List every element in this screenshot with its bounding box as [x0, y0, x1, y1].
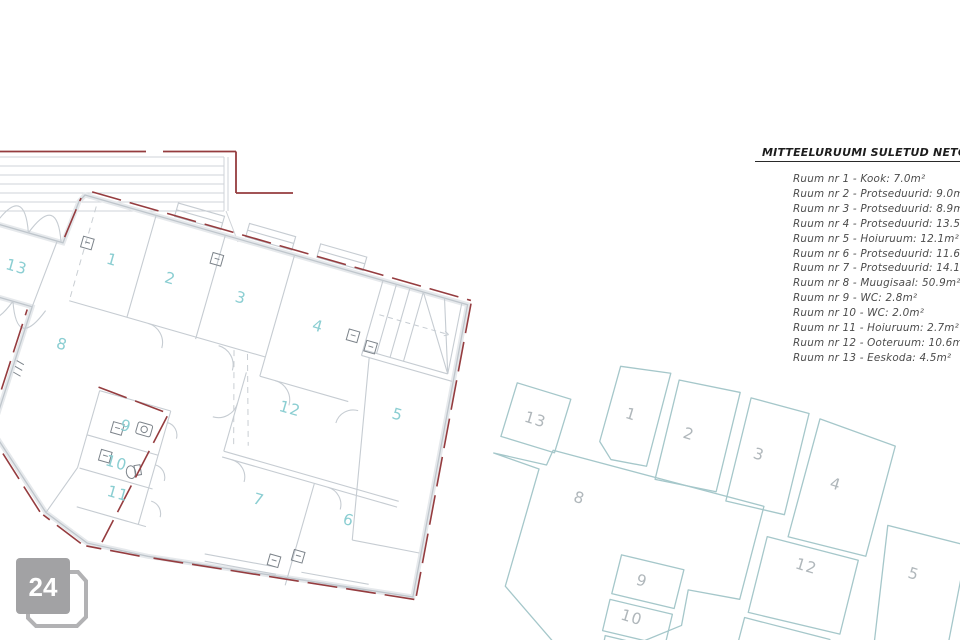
interior-walls	[0, 189, 489, 618]
room-number-label: 3	[233, 288, 248, 308]
room-7-outline	[716, 614, 834, 640]
stair-direction-line	[378, 311, 449, 339]
room-number-label: 7	[251, 490, 266, 510]
right-floor-plan: 12345678910111213	[441, 329, 960, 640]
room-number-label: 12	[793, 555, 819, 579]
floor-plan-page: 12345678910111213 12345678910111213	[0, 0, 960, 640]
room-number-label: 2	[163, 269, 178, 289]
room-number-label: 11	[105, 482, 131, 505]
legend-item: Ruum nr 4 - Protseduurid: 13.5m²	[793, 217, 960, 232]
room-5-outline	[837, 522, 960, 640]
room-number-label: 4	[828, 474, 844, 494]
room-number-label: 8	[54, 334, 69, 354]
room-number-label: 4	[310, 316, 325, 336]
legend-item: Ruum nr 12 - Ooteruum: 10.6m²	[793, 336, 960, 351]
room-number-label: 10	[619, 606, 645, 630]
room-list: Ruum nr 1 - Kook: 7.0m²Ruum nr 2 - Prots…	[793, 172, 960, 366]
legend-underline	[755, 161, 960, 162]
legend-item: Ruum nr 2 - Protseduurid: 9.0m²	[793, 187, 960, 202]
room-number-label: 13	[522, 408, 548, 432]
bottom-windows	[203, 539, 371, 607]
room-number-label: 5	[390, 405, 405, 425]
toilet-symbol	[125, 464, 141, 479]
legend-item: Ruum nr 11 - Hoiuruum: 2.7m²	[793, 321, 960, 336]
legend-item: Ruum nr 13 - Eeskoda: 4.5m²	[793, 351, 960, 366]
door-arcs	[98, 323, 375, 564]
room-number-label: 9	[634, 571, 650, 591]
room-number-label: 12	[277, 397, 303, 420]
room-number-label: 8	[571, 488, 587, 508]
legend-item: Ruum nr 5 - Hoiuruum: 12.1m²	[793, 232, 960, 247]
legend-item: Ruum nr 8 - Muugisaal: 50.9m²	[793, 276, 960, 291]
sink-symbol	[135, 422, 153, 438]
watermark-24-logo: 24	[16, 558, 86, 626]
room-9-outline	[610, 551, 686, 612]
legend-item: Ruum nr 9 - WC: 2.8m²	[793, 291, 960, 306]
terrace-boundary-red-line	[0, 152, 293, 194]
watermark-number: 24	[29, 572, 58, 602]
room-number-label: 10	[103, 451, 129, 474]
room-8-outline	[441, 426, 768, 640]
room-number-label: 13	[4, 255, 30, 278]
room-number-label: 3	[751, 444, 767, 464]
room-number-label: 1	[104, 250, 119, 270]
legend-item: Ruum nr 6 - Protseduurid: 11.6m²	[793, 247, 960, 262]
right-plan-room-numbers: 12345678910111213	[467, 376, 942, 640]
top-window-bays	[175, 203, 367, 270]
room-number-label: 1	[623, 404, 639, 424]
entrance-steps-hatch	[0, 152, 293, 243]
right-plan-room-outlines	[441, 329, 960, 640]
legend-item: Ruum nr 10 - WC: 2.0m²	[793, 306, 960, 321]
room-number-label: 2	[681, 424, 697, 444]
room-number-label: 9	[118, 416, 133, 436]
left-floor-plan: 12345678910111213	[0, 155, 502, 637]
legend-item: Ruum nr 1 - Kook: 7.0m²	[793, 172, 960, 187]
legend-item: Ruum nr 3 - Protseduurid: 8.9m²	[793, 202, 960, 217]
room-number-label: 5	[906, 564, 922, 584]
room-4-outline	[784, 419, 900, 560]
legend-item: Ruum nr 7 - Protseduurid: 14.1m²	[793, 261, 960, 276]
exterior-wall-band	[0, 174, 494, 634]
legend-title: MITTEELURUUMI SULETUD NETOPIND 149.7m²	[762, 146, 960, 159]
room-12-outline	[744, 533, 862, 640]
